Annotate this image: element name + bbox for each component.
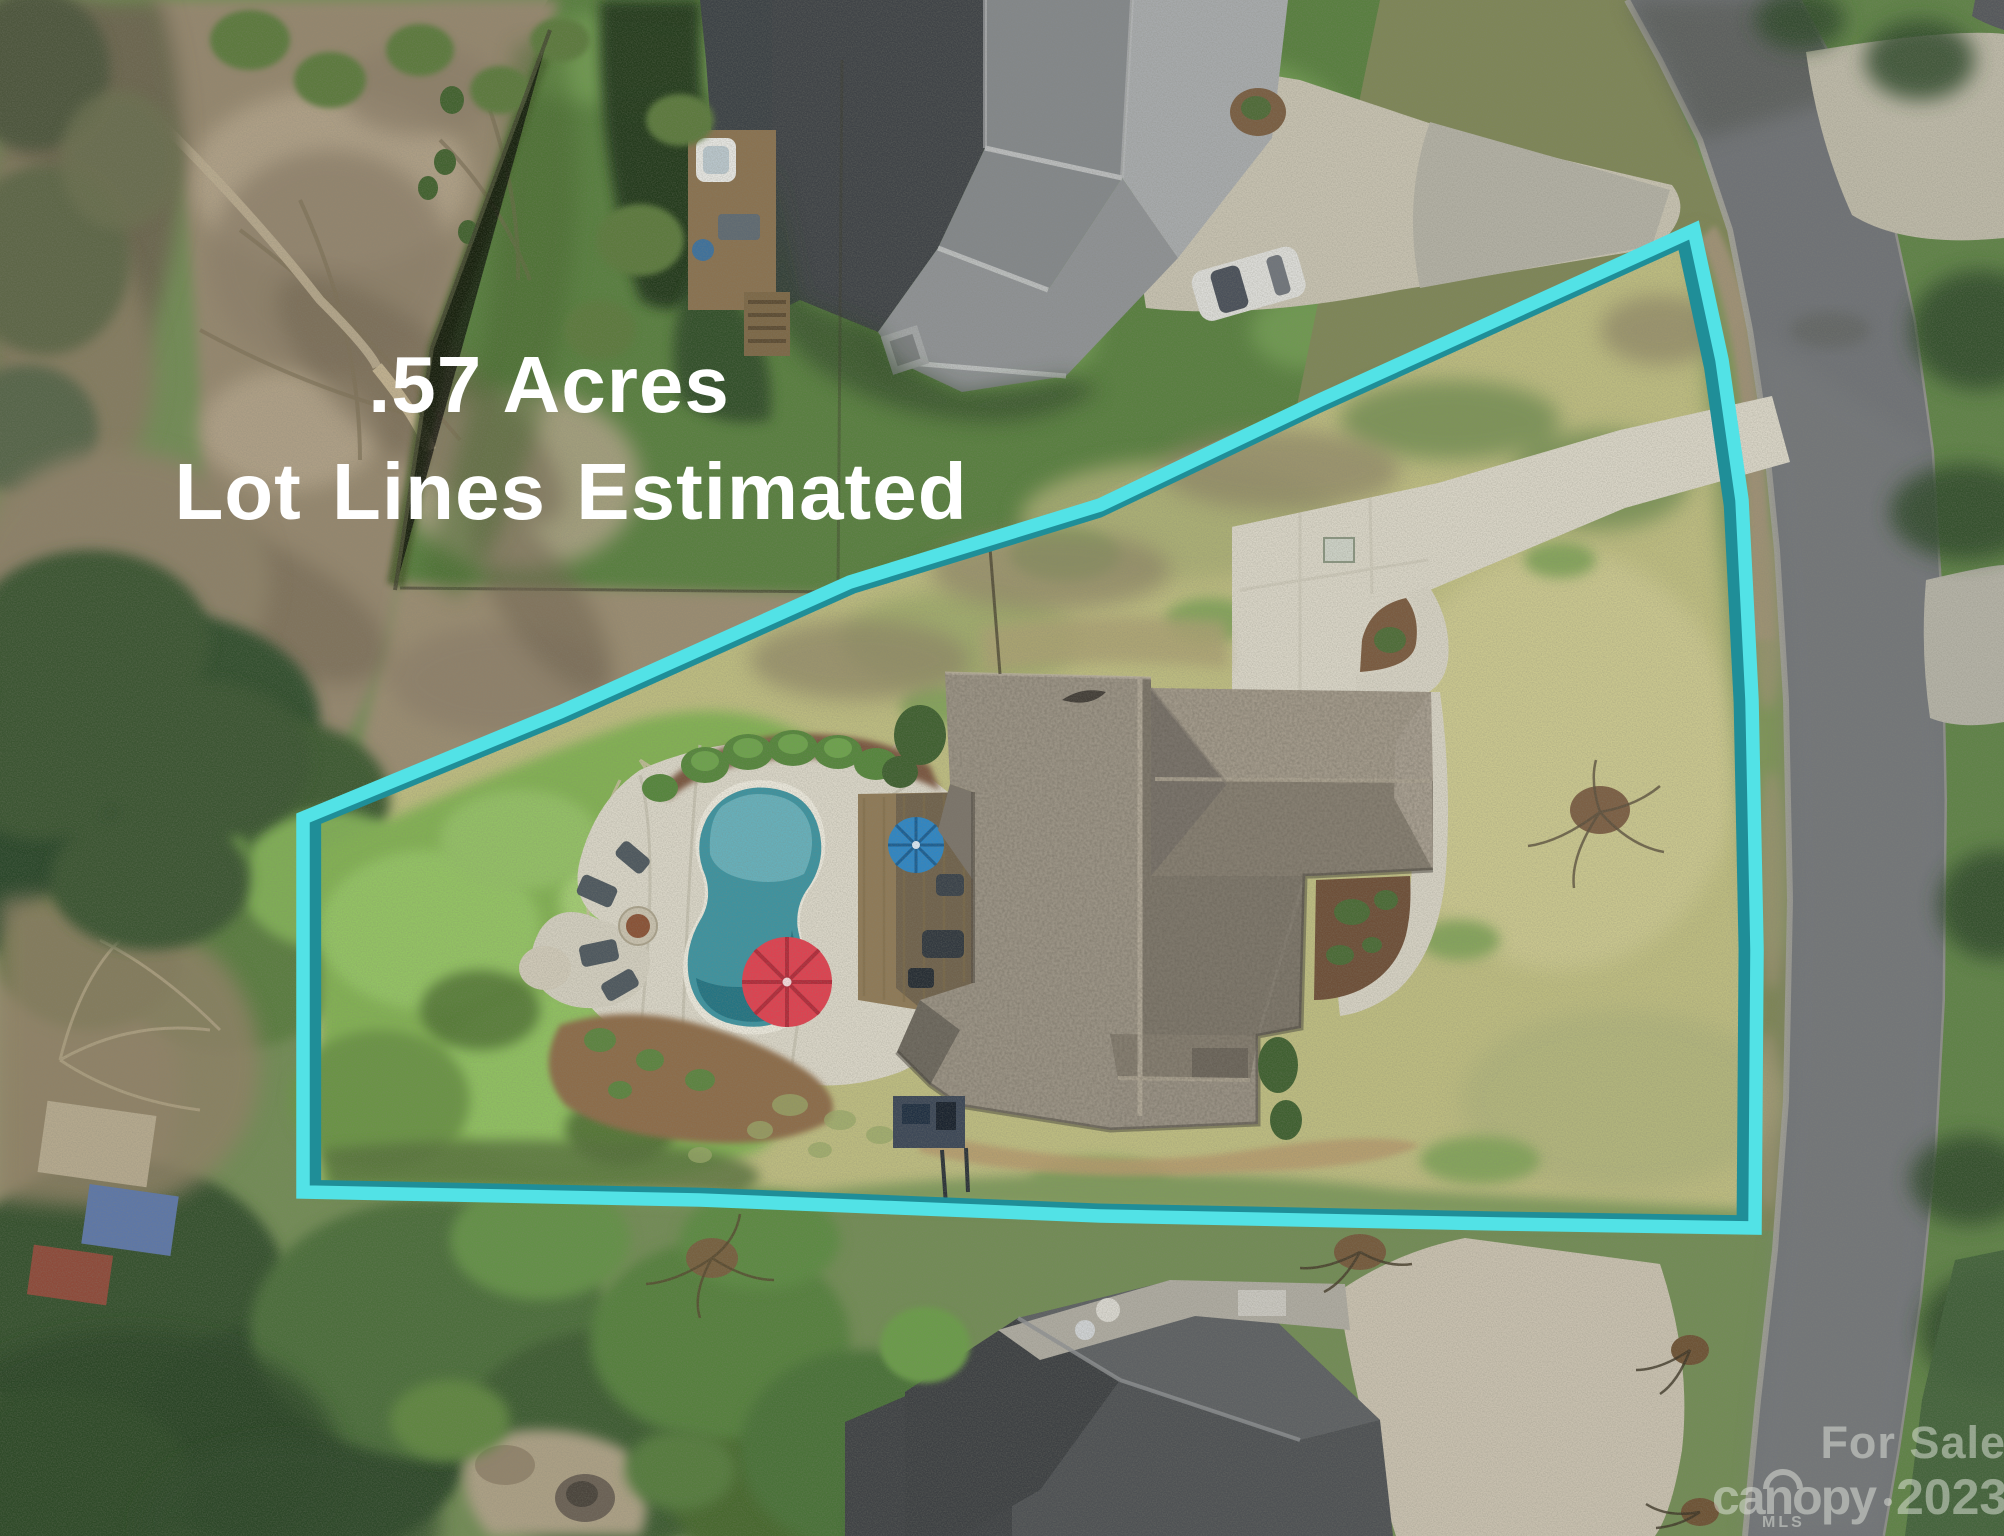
svg-text:For Sale: For Sale <box>1820 1417 2004 1468</box>
svg-text:.57 Acres: .57 Acres <box>368 340 730 429</box>
svg-text:Lot Lines Estimated: Lot Lines Estimated <box>174 447 967 536</box>
svg-text:2023: 2023 <box>1896 1469 2004 1525</box>
svg-text:MLS: MLS <box>1762 1514 1805 1531</box>
